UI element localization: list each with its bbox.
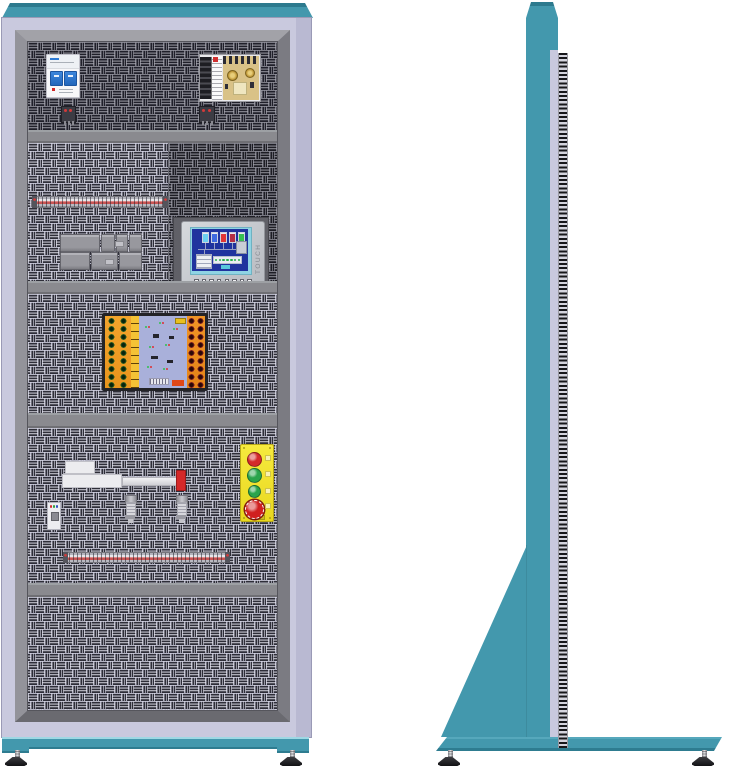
sensor-wire-green [53,505,56,508]
hmi-tank-graphic [220,232,227,243]
terminal-strip [64,552,229,563]
sensor-window [51,512,59,521]
relay-module [119,252,142,270]
foot-stem [290,750,295,757]
hmi-indicator-dot [234,259,237,262]
sensor-wire-blue [56,505,59,508]
breaker-toggle-right[interactable] [64,71,77,86]
psu-circuit-board [223,56,259,100]
button-label-tag [265,503,271,509]
foot-stem [15,750,20,757]
leveling-foot [5,750,29,766]
plc-ic-chip [151,356,158,359]
panel-2: TOUCH [28,143,277,281]
plc-connector [149,378,169,385]
hmi-indicator-dot [230,259,233,262]
psu-transformer [233,82,247,95]
panel-divider [28,281,277,294]
psu-brand-logo [213,57,218,62]
leveling-foot [280,750,304,766]
hmi-mixer-graphic [236,241,247,254]
plc-ic-chip [169,336,174,339]
psu-terminal-row [200,57,212,99]
hmi-tank-fill [212,234,217,242]
side-view-top-cap [524,2,560,18]
plc-socket-strip-right[interactable] [187,316,205,388]
foot-stem [702,750,707,757]
breaker-toggle-left[interactable] [50,71,63,86]
breaker-trip-indicator [52,88,55,91]
hmi-tank-graphic [202,232,209,243]
plc-led-red [148,326,150,328]
button-label-tag [265,471,271,477]
side-view-column-upper [550,18,558,50]
actuator-body [62,474,122,488]
plc-led-red [152,346,154,348]
plc-led-green [149,346,151,348]
breaker-brand-mark [50,58,59,60]
plc-training-board [102,313,208,391]
foot-stem [448,750,453,757]
proximity-sensor [124,495,136,523]
panel-5 [28,597,277,710]
breaker-label-line [50,62,74,63]
hmi-tank-graphic [211,232,218,243]
hmi-indicator-strip [213,256,242,264]
hmi-tank-fill [203,234,208,242]
plc-board-label [172,380,184,386]
switching-power-supply [199,54,261,102]
hmi-tank-graphic [229,232,236,243]
panel-1 [28,42,277,130]
panel-4 [28,428,277,583]
cabinet-top-cap [2,3,313,18]
breaker-label-line [59,92,73,93]
actuator-rod-end-cap [176,470,186,491]
hmi-indicator-dot [226,259,229,262]
actuator-block-upper [65,461,95,474]
side-view-base-plate [436,737,723,751]
hmi-tank-fill [221,234,226,242]
leveling-foot [692,750,716,766]
plc-led-green [165,344,167,346]
green-push-button[interactable] [247,468,262,483]
plc-led-green [145,326,147,328]
foot-base [438,757,460,766]
relay-module [60,234,100,252]
foot-base [5,757,27,766]
emergency-stop-button[interactable] [245,500,264,519]
leveling-foot [438,750,462,766]
actuator-rod [122,477,177,486]
psu-spec-label [212,56,222,100]
sensor-wire-red [50,505,53,508]
foot-base [692,757,714,766]
side-view-column [526,18,550,737]
panel-3 [28,294,277,413]
photo-sensor [47,502,61,530]
side-view-column-seam [526,545,527,737]
side-view-frame-strip [550,50,558,737]
red-push-button[interactable] [247,452,262,467]
hmi-indicator-dot [238,259,241,262]
psu-coil [245,68,255,78]
relay-module [101,234,115,252]
panel-divider [28,413,277,428]
hmi-report-window [196,254,212,269]
psu-capacitor [225,84,228,89]
hmi-tank-fill [230,234,235,242]
foot-base [280,757,302,766]
hmi-indicator-dot [222,259,225,262]
panel-divider [28,583,277,597]
equipment-illustration: TOUCH [0,0,730,766]
plc-ic-chip [153,334,159,338]
hmi-indicator-dot [215,259,218,262]
relay-module-group [60,234,143,270]
breaker-top-face [47,55,79,69]
plc-label-column [131,316,139,388]
cabinet-body-right-shade [296,18,311,737]
relay-module [60,252,90,270]
relay-module [91,252,118,270]
hmi-touchscreen[interactable] [192,229,248,271]
push-button-station [240,444,274,522]
hmi-status-label [221,265,230,269]
terminal-block [61,106,76,123]
terminal-block [199,106,215,123]
perforated-texture [28,597,277,710]
relay-row [60,252,142,270]
base-strip [29,737,277,749]
plc-led-red [162,322,164,324]
relay-module [129,234,142,252]
plc-circuit-area [139,316,187,388]
plc-led-red [150,366,152,368]
button-label-tag [265,455,271,461]
hmi-indicator-dot [219,259,222,262]
panel-opening: TOUCH [28,42,277,710]
plc-led-red [176,328,178,330]
plc-led-green [173,328,175,330]
panel-divider [28,130,277,143]
psu-coil [227,70,238,81]
side-view-perforation-edge [558,53,568,748]
plc-led-green [159,322,161,324]
terminal-strip [33,196,167,208]
plc-led-green [147,366,149,368]
hmi-side-label: TOUCH [255,232,262,274]
side-view-gusset [441,545,527,737]
plc-ic-chip [167,360,173,363]
psu-capacitor [250,82,254,88]
proximity-sensor [175,495,187,523]
plc-socket-strip-left[interactable] [105,316,131,388]
plc-jumper-yellow [175,318,186,324]
breaker-label-line [59,89,73,90]
plc-led-red [166,368,168,370]
plc-led-red [168,344,170,346]
button-label-tag [265,488,271,494]
plc-led-green [163,368,165,370]
circuit-breaker [46,54,80,98]
green-push-button-small[interactable] [248,485,261,498]
relay-module [116,234,128,252]
relay-row [60,234,142,252]
